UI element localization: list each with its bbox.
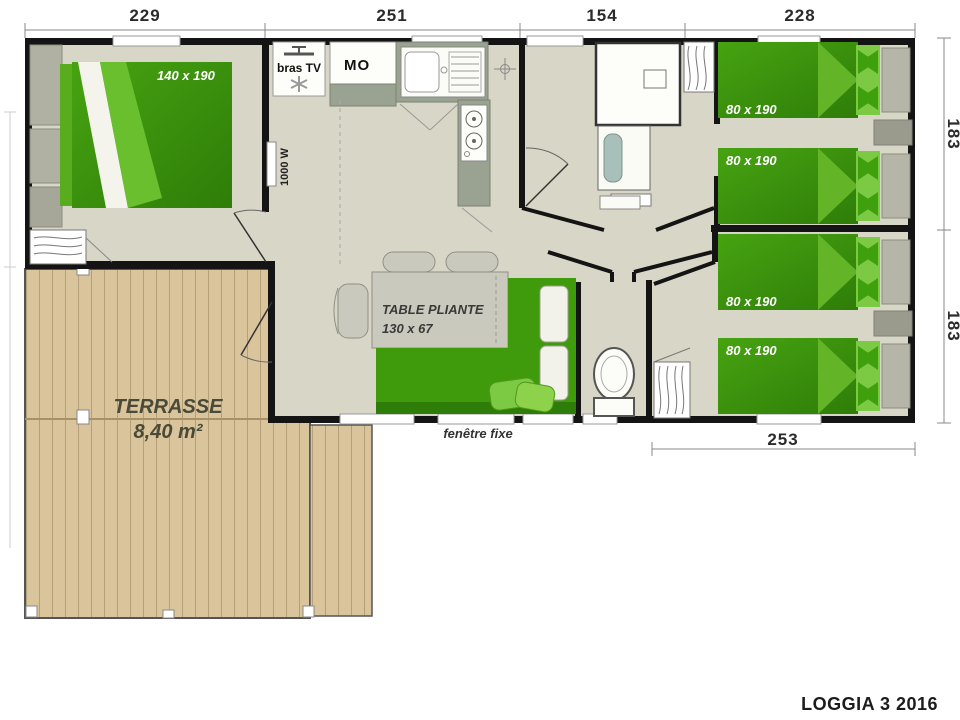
terrace-step: [310, 425, 372, 616]
shower: [596, 43, 680, 125]
dim-253: 253: [767, 430, 798, 449]
twin-bed-label-4: 80 x 190: [726, 343, 777, 358]
heater-label: 1000 W: [279, 147, 291, 186]
plan-title: LOGGIA 3 2016: [801, 694, 938, 714]
dimension-left-faint: [4, 112, 16, 548]
dim-183-a: 183: [944, 118, 960, 149]
window-label: fenêtre fixe: [443, 426, 512, 441]
wardrobe-hanging: [684, 42, 714, 92]
sink-unit: [396, 42, 488, 102]
tv-label: bras TV: [277, 61, 321, 75]
microwave-label: MO: [344, 57, 370, 74]
dimension-right: [937, 38, 951, 423]
stool: [383, 252, 435, 272]
table-size: 130 x 67: [382, 321, 433, 336]
dim-251: 251: [376, 6, 407, 25]
stool: [446, 252, 498, 272]
tv-bracket-box: bras TV: [273, 42, 325, 96]
dim-183-b: 183: [944, 310, 960, 341]
chair: [338, 284, 368, 338]
table-label: TABLE PLIANTE: [382, 302, 484, 317]
floor-plan-page: TERRASSE 8,40 m²: [0, 0, 960, 720]
bedroom-divider-wall: [711, 225, 915, 232]
headboard: [60, 64, 72, 206]
nightstand: [874, 120, 912, 145]
sink-basin: [405, 52, 439, 92]
twin-bed-label-1: 80 x 190: [726, 102, 777, 117]
dim-228: 228: [784, 6, 815, 25]
twin-bed-label-3: 80 x 190: [726, 294, 777, 309]
kitchen-bath-wall: [519, 38, 525, 208]
twin-bed-label-2: 80 x 190: [726, 153, 777, 168]
dim-229: 229: [129, 6, 160, 25]
sofa-cushion: [540, 286, 568, 342]
radiator: 1000 W: [267, 142, 291, 186]
terrace-area: 8,40 m²: [134, 421, 204, 443]
terrace-name: TERRASSE: [114, 396, 224, 418]
wardrobe: [30, 45, 62, 125]
floor-plan: TERRASSE 8,40 m²: [0, 0, 960, 720]
wc-east-wall: [646, 280, 652, 423]
dim-154: 154: [586, 6, 617, 25]
nightstand: [874, 311, 912, 336]
microwave-box: MO: [330, 42, 396, 106]
hob-counter: [458, 100, 490, 206]
master-bed-label: 140 x 190: [157, 68, 216, 83]
